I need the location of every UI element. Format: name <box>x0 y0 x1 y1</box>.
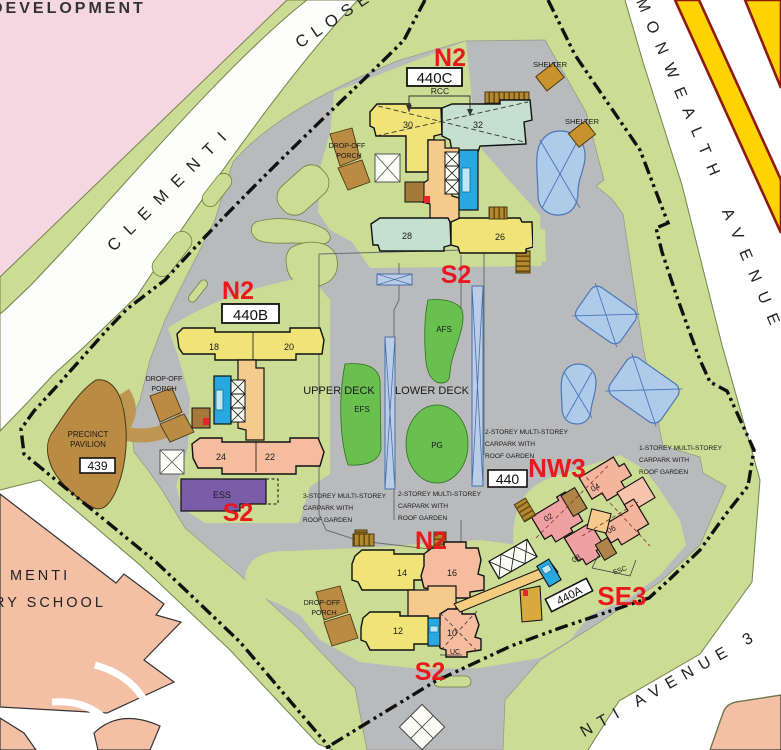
svg-text:N2: N2 <box>415 527 447 555</box>
svg-text:NW3: NW3 <box>528 453 586 483</box>
svg-text:3-STOREY MULTI-STOREY: 3-STOREY MULTI-STOREY <box>303 493 387 500</box>
svg-text:ROOF GARDEN: ROOF GARDEN <box>485 453 534 460</box>
svg-text:DROP-OFF: DROP-OFF <box>146 376 183 383</box>
svg-text:RY SCHOOL: RY SCHOOL <box>0 595 106 611</box>
svg-text:AFS: AFS <box>436 325 452 334</box>
svg-text:26: 26 <box>495 232 505 242</box>
svg-text:32: 32 <box>473 120 483 130</box>
svg-text:RCC: RCC <box>431 86 449 96</box>
svg-text:S2: S2 <box>223 499 254 527</box>
svg-text:DEVELOPMENT: DEVELOPMENT <box>0 0 146 17</box>
svg-text:22: 22 <box>265 452 275 462</box>
svg-text:PORCH: PORCH <box>151 386 176 393</box>
svg-text:ROOF GARDEN: ROOF GARDEN <box>639 469 688 476</box>
svg-text:CARPARK WITH: CARPARK WITH <box>398 503 448 510</box>
svg-text:MENTI: MENTI <box>10 568 70 584</box>
svg-text:SHELTER: SHELTER <box>533 60 568 69</box>
svg-text:1-STOREY MULTI-STOREY: 1-STOREY MULTI-STOREY <box>639 445 723 452</box>
svg-text:440C: 440C <box>417 70 453 87</box>
svg-text:PORCH: PORCH <box>311 610 336 617</box>
svg-text:14: 14 <box>397 568 407 578</box>
svg-text:439: 439 <box>87 459 107 473</box>
svg-text:PAVILION: PAVILION <box>70 440 106 449</box>
svg-text:18: 18 <box>209 342 219 352</box>
svg-text:CARPARK WITH: CARPARK WITH <box>485 441 535 448</box>
svg-text:S2: S2 <box>441 261 472 289</box>
svg-text:440: 440 <box>496 471 520 487</box>
svg-text:16: 16 <box>447 568 457 578</box>
svg-text:12: 12 <box>393 626 403 636</box>
svg-text:SE3: SE3 <box>597 581 646 611</box>
svg-text:DROP-OFF: DROP-OFF <box>304 600 341 607</box>
svg-text:N2: N2 <box>222 277 254 305</box>
svg-text:440B: 440B <box>233 307 268 324</box>
svg-text:30: 30 <box>403 120 413 130</box>
svg-text:EFS: EFS <box>354 405 370 414</box>
svg-text:20: 20 <box>284 342 294 352</box>
svg-text:24: 24 <box>216 452 226 462</box>
svg-text:LOWER DECK: LOWER DECK <box>395 385 470 397</box>
svg-text:CARPARK WITH: CARPARK WITH <box>639 457 689 464</box>
svg-text:S2: S2 <box>415 658 446 686</box>
svg-text:SHELTER: SHELTER <box>565 117 600 126</box>
svg-text:10: 10 <box>447 628 457 638</box>
svg-text:2-STOREY MULTI-STOREY: 2-STOREY MULTI-STOREY <box>485 429 569 436</box>
svg-text:PRECINCT: PRECINCT <box>68 430 109 439</box>
svg-text:ROOF GARDEN: ROOF GARDEN <box>398 515 447 522</box>
svg-text:PORCH: PORCH <box>336 153 361 160</box>
svg-text:ROOF GARDEN: ROOF GARDEN <box>303 517 352 524</box>
svg-text:PG: PG <box>431 441 443 450</box>
svg-text:DROP-OFF: DROP-OFF <box>329 143 366 150</box>
svg-text:UPPER DECK: UPPER DECK <box>303 385 375 397</box>
svg-text:28: 28 <box>402 231 412 241</box>
svg-text:CARPARK WITH: CARPARK WITH <box>303 505 353 512</box>
svg-text:2-STOREY MULTI-STOREY: 2-STOREY MULTI-STOREY <box>398 491 482 498</box>
